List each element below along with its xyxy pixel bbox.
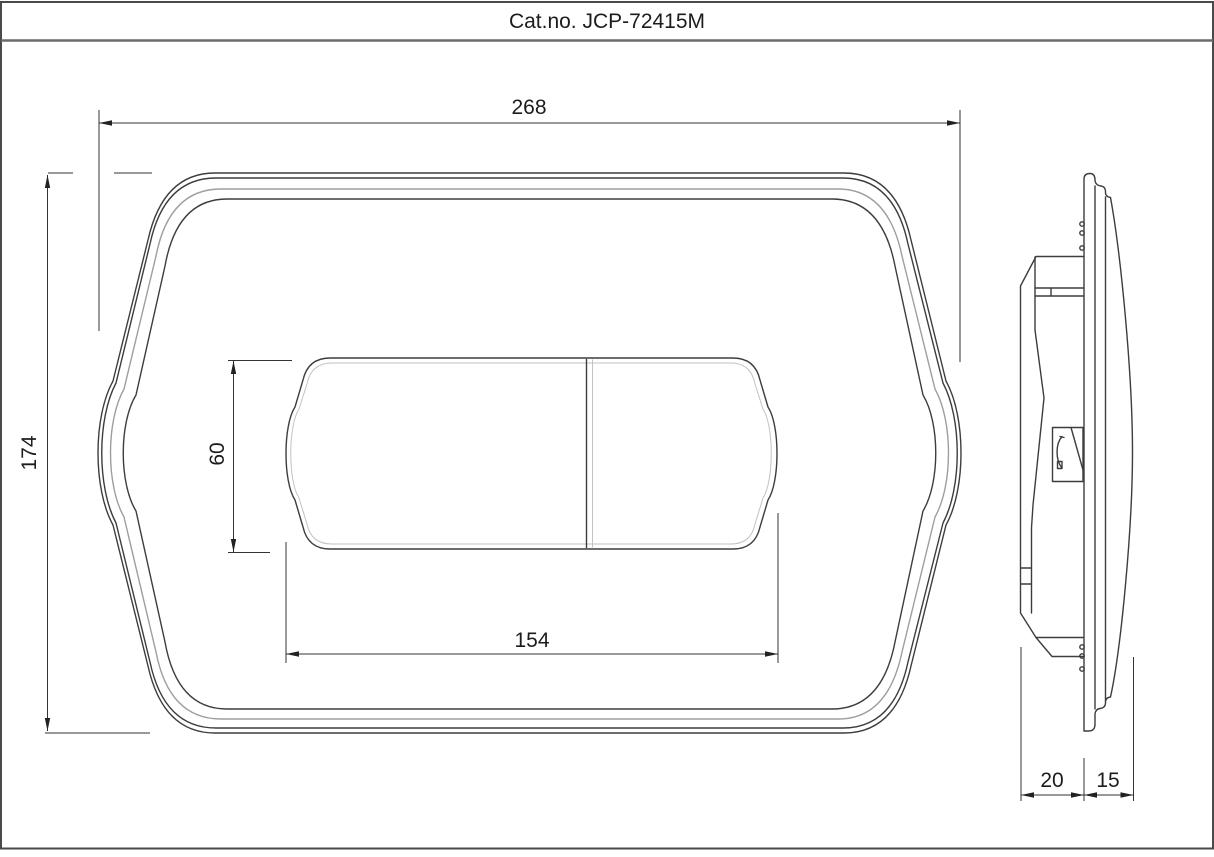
dim-label-button-width: 154 — [514, 629, 549, 652]
drawing-sheet: Cat.no. JCP-72415M 268 — [0, 0, 1214, 857]
frame-bottom-step — [1036, 638, 1083, 657]
side-view — [1021, 174, 1133, 732]
dim-label-button-height: 60 — [206, 442, 229, 465]
dimension-depths: 20 15 — [1021, 647, 1134, 801]
dim-label-depth-protrusion: 15 — [1096, 769, 1119, 792]
button-bevel-line — [291, 363, 772, 544]
clip-housing — [1053, 428, 1084, 482]
button-outline — [286, 358, 777, 549]
technical-drawing: Cat.no. JCP-72415M 268 — [0, 0, 1214, 857]
frame-inner-edge — [1032, 257, 1045, 613]
flush-buttons — [286, 358, 777, 549]
dim-label-overall-height: 174 — [18, 435, 41, 470]
dim-label-depth-in-wall: 20 — [1040, 769, 1063, 792]
dimension-overall-width: 268 — [99, 96, 960, 362]
frame-rail-lines — [1035, 288, 1084, 296]
frame-inner-ticks — [1021, 568, 1032, 584]
sheet-border — [1, 2, 1213, 849]
dimension-button-width: 154 — [286, 513, 778, 663]
dimension-button-height: 60 — [206, 361, 292, 553]
title-block: Cat.no. JCP-72415M — [1, 10, 1213, 41]
catalog-number: Cat.no. JCP-72415M — [509, 10, 705, 33]
dim-label-overall-width: 268 — [511, 96, 546, 119]
plate-profile — [1084, 174, 1133, 732]
dimension-overall-height: 174 — [18, 173, 152, 733]
